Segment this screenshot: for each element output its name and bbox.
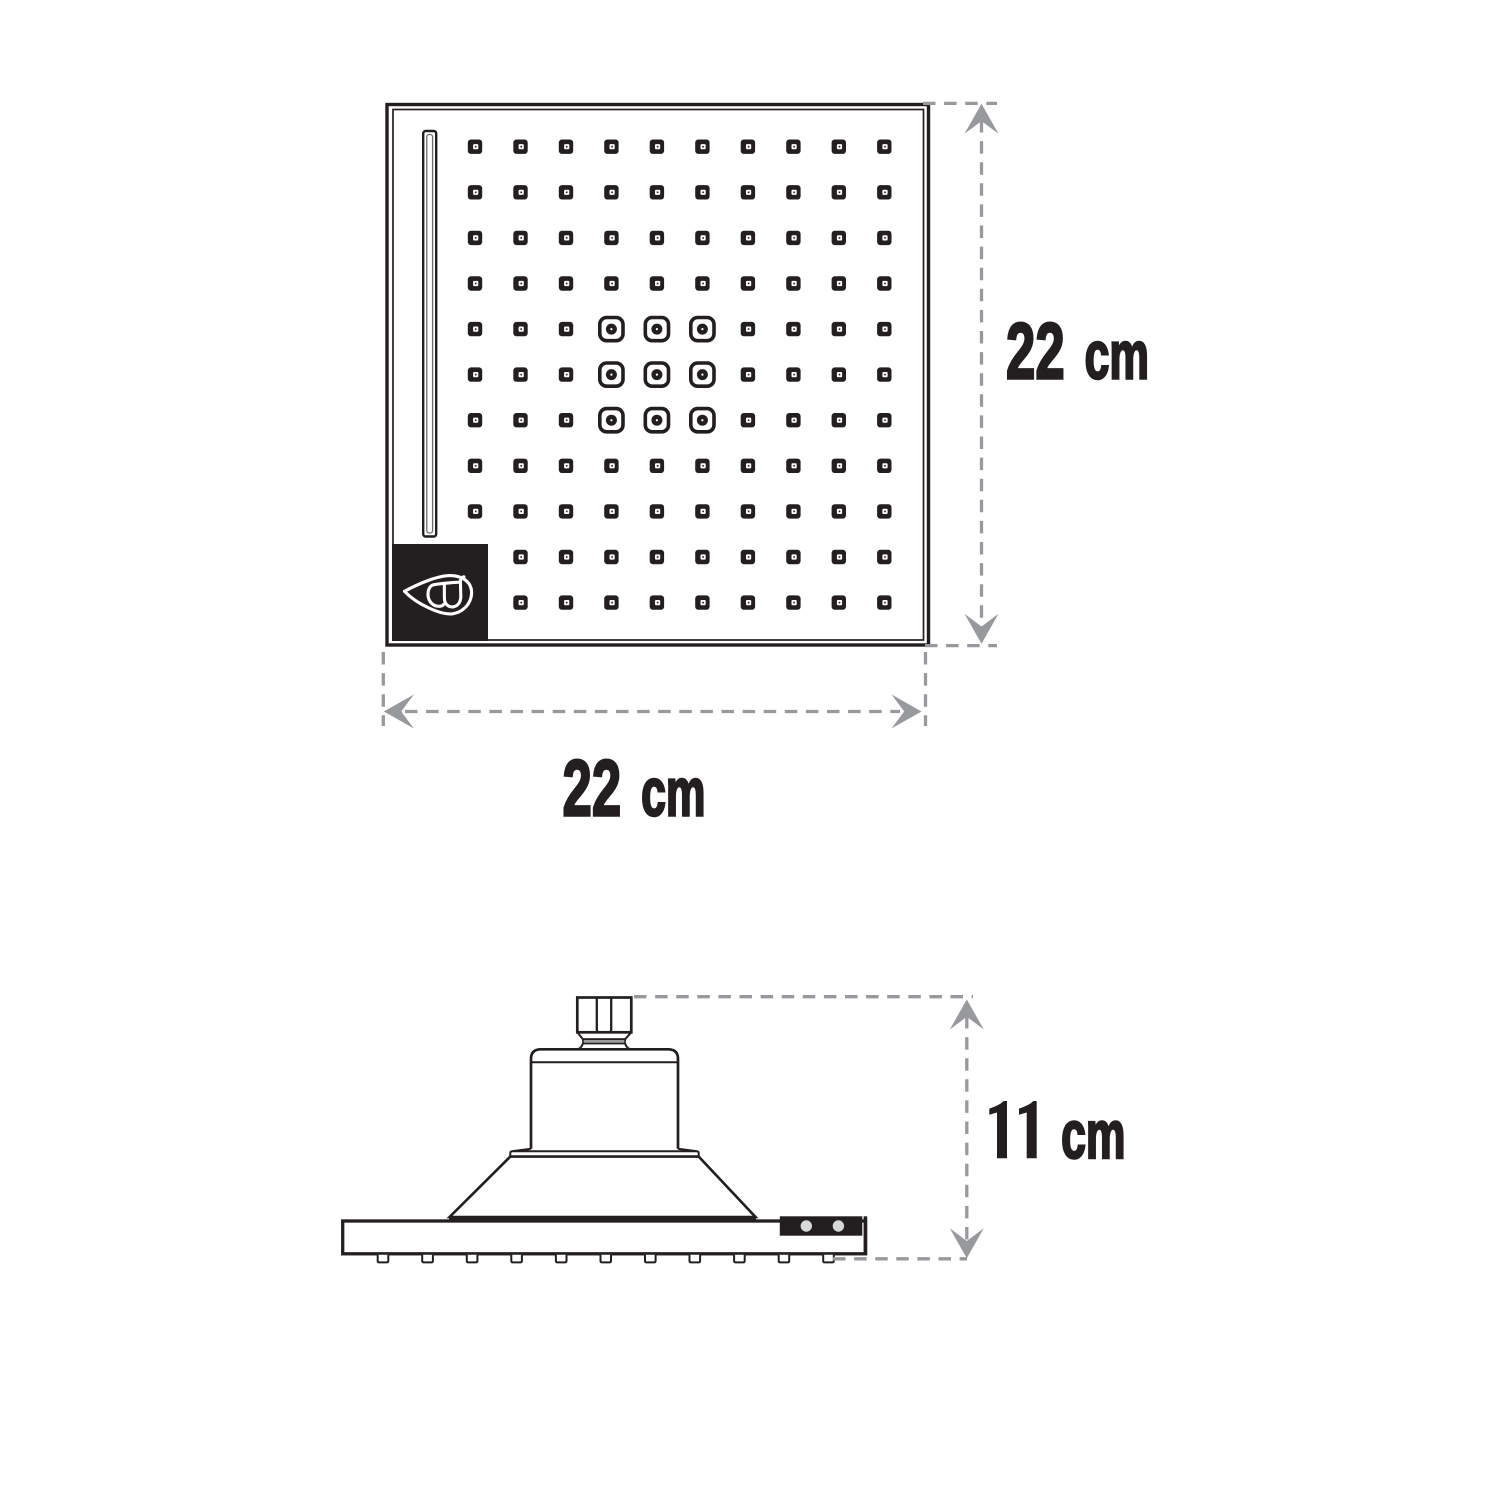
svg-text:cm: cm	[1061, 1098, 1125, 1174]
